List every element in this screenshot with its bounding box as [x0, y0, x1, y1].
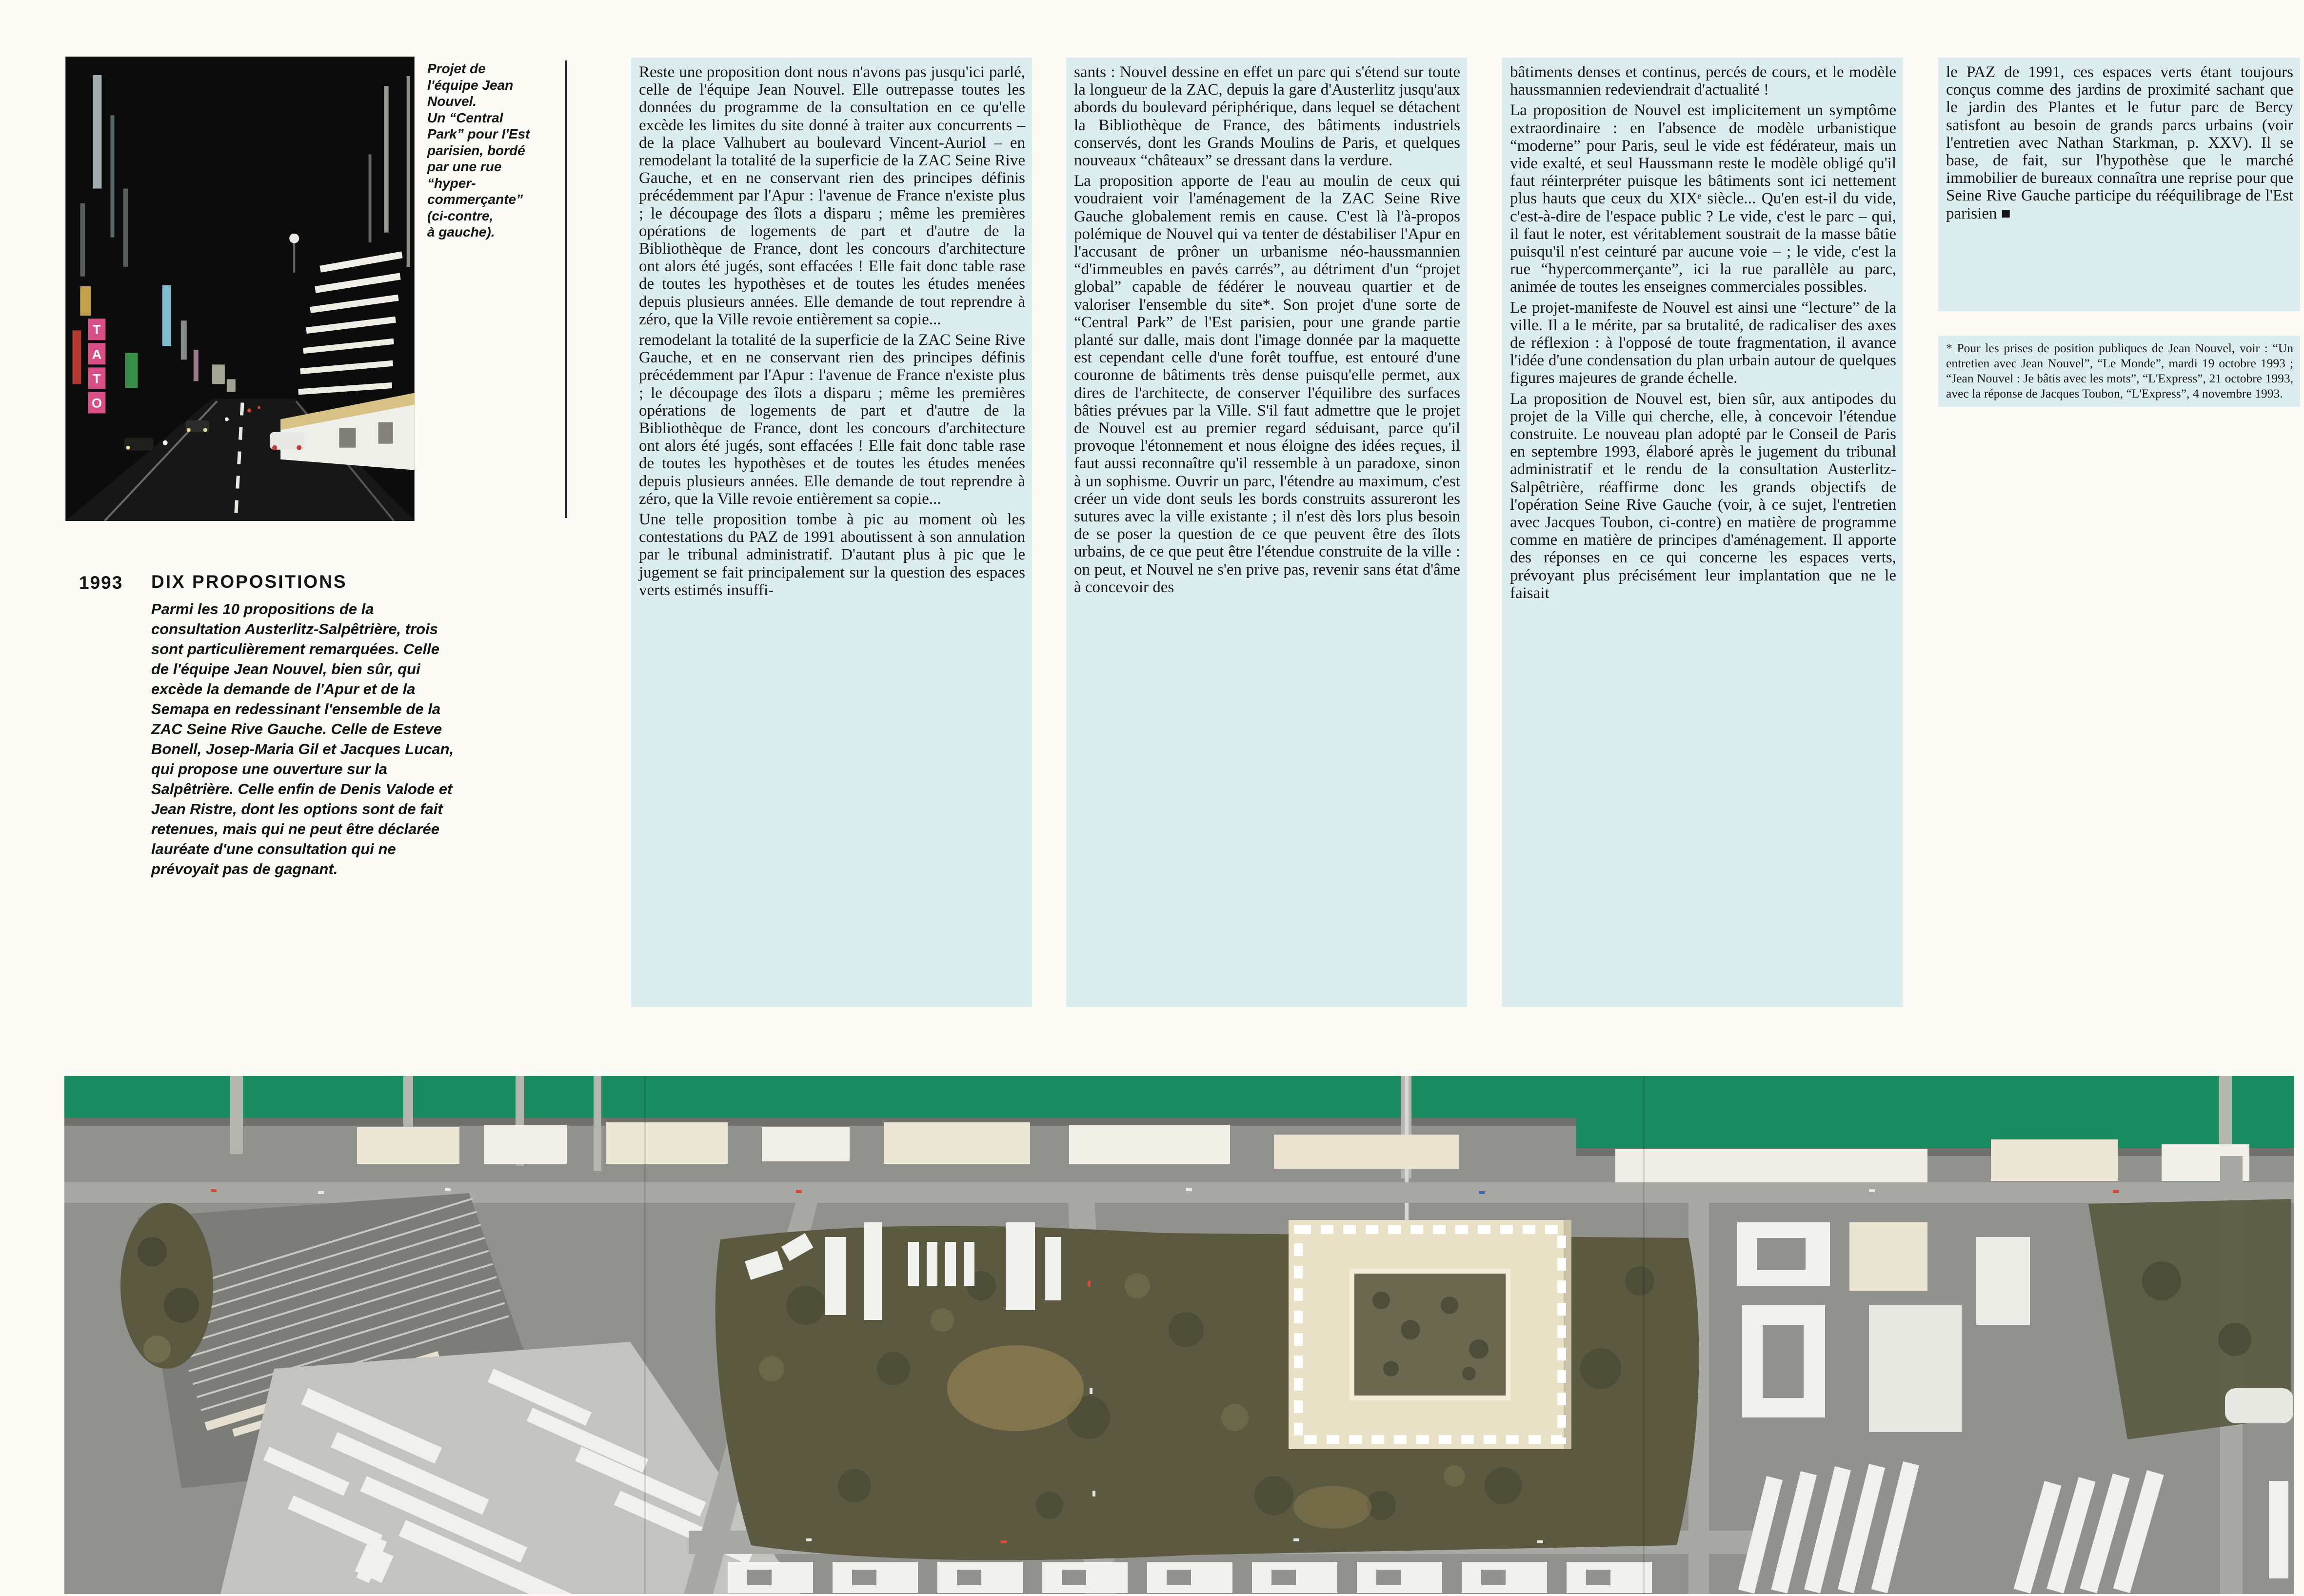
svg-text:T: T — [93, 371, 101, 386]
library-courtyard-building — [1289, 1220, 1571, 1449]
article-column-2: sants : Nouvel dessine en effet un parc … — [1066, 58, 1467, 1007]
aerial-model-photo — [64, 1076, 2294, 1594]
street-photo-image: T A T O — [65, 57, 415, 521]
svg-text:O: O — [92, 396, 102, 411]
article-column-1: Reste une proposition dont nous n'avons … — [631, 58, 1032, 1007]
paragraph: bâtiments denses et continus, percés de … — [1510, 63, 1896, 99]
magazine-page: T A T O — [0, 0, 2304, 1596]
paragraph: le PAZ de 1991, ces espaces verts étant … — [1946, 63, 2293, 222]
sidebar-content: DIX PROPOSITIONS Parmi les 10 propositio… — [151, 572, 459, 879]
svg-text:A: A — [92, 347, 102, 361]
article-column-3: bâtiments denses et continus, percés de … — [1502, 58, 1903, 1007]
sidebar-1993: 1993 DIX PROPOSITIONS Parmi les 10 propo… — [79, 572, 459, 879]
sidebar-title: DIX PROPOSITIONS — [151, 572, 459, 592]
photo-caption: Projet de l'équipe Jean Nouvel. Un “Cent… — [427, 60, 560, 240]
paragraph: Le projet-manifeste de Nouvel est ainsi … — [1510, 299, 1896, 387]
sidebar-body: Parmi les 10 propositions de la consulta… — [151, 599, 459, 879]
aerial-model-image — [64, 1076, 2294, 1594]
paragraph: sants : Nouvel dessine en effet un parc … — [1074, 63, 1460, 169]
paragraph: La proposition apporte de l'eau au mouli… — [1074, 172, 1460, 596]
street-photo: T A T O — [65, 57, 415, 521]
article-column-4: le PAZ de 1991, ces espaces verts étant … — [1938, 58, 2300, 311]
paragraph: La proposition de Nouvel est, bien sûr, … — [1510, 390, 1896, 602]
paragraph: La proposition de Nouvel est impliciteme… — [1510, 101, 1896, 296]
footnote: * Pour les prises de position publiques … — [1938, 336, 2300, 407]
sidebar-year: 1993 — [79, 573, 123, 593]
paragraph: Reste une proposition dont nous n'avons … — [639, 63, 1025, 328]
paragraph: Une telle proposition tombe à pic au mom… — [639, 511, 1025, 599]
paragraph: remodelant la totalité de la superficie … — [639, 331, 1025, 508]
svg-text:T: T — [93, 322, 101, 337]
caption-divider-rule — [565, 60, 567, 518]
